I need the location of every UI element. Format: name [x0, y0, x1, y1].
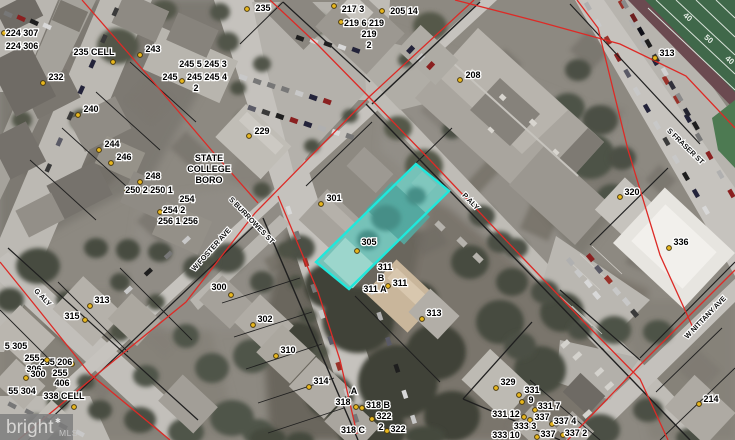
svg-text:338 CELL: 338 CELL: [43, 391, 85, 401]
svg-text:235 CELL: 235 CELL: [73, 47, 115, 57]
svg-text:BORO: BORO: [196, 175, 223, 185]
svg-text:406: 406: [54, 378, 69, 388]
svg-text:2: 2: [366, 40, 371, 50]
svg-text:244: 244: [104, 139, 119, 149]
svg-text:320: 320: [624, 187, 639, 197]
svg-text:318 B: 318 B: [366, 400, 391, 410]
svg-text:235: 235: [255, 3, 270, 13]
svg-text:300: 300: [211, 282, 226, 292]
svg-text:322: 322: [376, 411, 391, 421]
svg-text:314: 314: [313, 376, 328, 386]
svg-text:336: 336: [673, 237, 688, 247]
svg-text:214: 214: [703, 394, 718, 404]
svg-text:313: 313: [426, 308, 441, 318]
svg-text:337 2: 337 2: [565, 428, 588, 438]
svg-text:219 6 219: 219 6 219: [344, 18, 384, 28]
svg-text:9: 9: [528, 395, 533, 405]
svg-text:331 7: 331 7: [538, 401, 561, 411]
svg-text:337: 337: [534, 412, 549, 422]
svg-text:250 2 250 1: 250 2 250 1: [125, 185, 173, 195]
svg-text:240: 240: [83, 104, 98, 114]
svg-text:311: 311: [378, 262, 393, 272]
svg-text:333 10: 333 10: [492, 430, 520, 440]
svg-text:245 5 245 3: 245 5 245 3: [179, 59, 227, 69]
svg-text:B: B: [378, 273, 385, 283]
svg-text:302: 302: [257, 314, 272, 324]
svg-text:246: 246: [116, 152, 131, 162]
svg-text:255: 255: [24, 353, 39, 363]
svg-text:329: 329: [500, 377, 515, 387]
svg-text:301: 301: [326, 193, 341, 203]
svg-text:208: 208: [465, 70, 480, 80]
svg-text:311: 311: [393, 278, 408, 288]
svg-text:315: 315: [64, 311, 79, 321]
svg-text:254: 254: [179, 194, 194, 204]
svg-text:313: 313: [659, 48, 674, 58]
svg-text:224 306: 224 306: [6, 41, 39, 51]
svg-text:219: 219: [361, 29, 376, 39]
svg-text:310: 310: [280, 345, 295, 355]
svg-text:224 307: 224 307: [6, 28, 39, 38]
svg-text:217 3: 217 3: [342, 4, 365, 14]
svg-text:254 2: 254 2: [163, 205, 186, 215]
svg-text:2: 2: [378, 422, 383, 432]
svg-text:318: 318: [335, 397, 350, 407]
svg-text:bright: bright: [6, 417, 54, 438]
svg-text:STATE: STATE: [195, 153, 223, 163]
svg-text:300: 300: [30, 369, 45, 379]
svg-text:337 4: 337 4: [554, 416, 577, 426]
svg-text:232: 232: [48, 72, 63, 82]
svg-text:331 12: 331 12: [492, 409, 520, 419]
svg-text:✱: ✱: [55, 417, 61, 425]
svg-text:255: 255: [52, 368, 67, 378]
svg-text:5 305: 5 305: [5, 341, 28, 351]
svg-text:55 304: 55 304: [8, 386, 36, 396]
svg-text:331: 331: [524, 385, 539, 395]
svg-text:205 14: 205 14: [390, 6, 418, 16]
svg-text:256 1 256: 256 1 256: [158, 216, 198, 226]
svg-text:248: 248: [145, 171, 160, 181]
svg-text:313: 313: [94, 295, 109, 305]
svg-text:A: A: [351, 386, 358, 396]
svg-text:311 A: 311 A: [363, 284, 387, 294]
svg-text:MLS: MLS: [59, 428, 78, 438]
svg-text:245 245 4: 245 245 4: [187, 72, 227, 82]
svg-text:2: 2: [193, 83, 198, 93]
svg-text:COLLEGE: COLLEGE: [187, 164, 231, 174]
svg-text:322: 322: [390, 424, 405, 434]
svg-text:318 C: 318 C: [341, 425, 366, 435]
svg-text:245: 245: [162, 72, 177, 82]
svg-text:243: 243: [145, 44, 160, 54]
svg-text:337: 337: [540, 429, 555, 439]
svg-text:229: 229: [254, 126, 269, 136]
svg-text:305: 305: [361, 237, 376, 247]
